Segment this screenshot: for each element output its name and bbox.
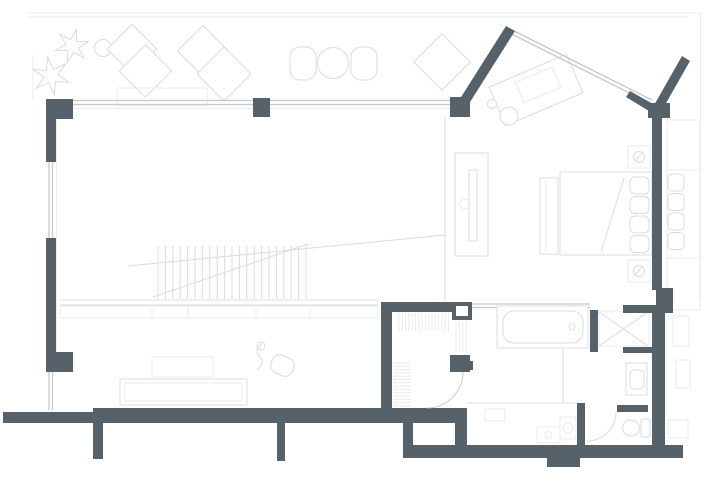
toilet-bowl (623, 420, 640, 436)
floor-drain (545, 432, 552, 439)
plant-star-1 (56, 30, 89, 63)
kitchen-counter (60, 306, 378, 318)
wall-a-vertical (577, 403, 585, 447)
wall-hall-top (617, 405, 648, 412)
wall-bath-divider (590, 310, 598, 352)
bath-door-swing (587, 412, 616, 441)
side-cushion-4 (668, 233, 684, 250)
toilet-tank (641, 419, 650, 437)
side-cushion-2 (668, 194, 684, 211)
wall-top-col-mid (253, 98, 270, 117)
wall-left-col-top (46, 99, 73, 119)
bed-pillow-2 (630, 197, 649, 214)
wall-stub-mid (277, 423, 285, 461)
wall-closet-left (381, 302, 392, 423)
wall-right-lower (652, 313, 665, 448)
desk-stool (500, 107, 518, 125)
wall-right-upper (652, 112, 662, 290)
stair-treads (158, 246, 306, 299)
bed-bench (540, 178, 558, 254)
wall-entry-step (547, 458, 580, 467)
wall-bottom-lower (403, 445, 683, 458)
patio-table (318, 48, 349, 79)
patio-chair-right (351, 47, 377, 80)
furniture (33, 24, 700, 443)
side-cushion-3 (668, 213, 684, 230)
terrace-mat (117, 88, 207, 106)
work-armchair (268, 352, 297, 379)
closet-door-swing (427, 372, 463, 408)
stair-stringer-diagonal (153, 244, 308, 297)
wall-shower-lip (623, 347, 652, 353)
wall-closet-column-notch (468, 361, 473, 370)
low-table (152, 357, 213, 377)
wall-left-col-bottom (46, 352, 73, 372)
desk-lamp (488, 100, 497, 109)
neighbor-fixture-2 (676, 360, 690, 388)
wall-bottom-left (3, 412, 105, 423)
wall-closet-column (450, 355, 470, 372)
floor-lines (56, 109, 590, 404)
bathtub-outer (497, 306, 588, 348)
wall-bed-bath (623, 305, 673, 313)
patio-chair-left (290, 47, 316, 80)
closet-shelf-hatch-top (399, 313, 449, 331)
side-cushion-1 (668, 174, 684, 191)
washing-machine (560, 417, 576, 439)
floor-plan-page (0, 0, 720, 480)
bed-pillow-4 (630, 236, 649, 253)
wall-stub-left (93, 423, 103, 459)
plant-star-2 (33, 57, 69, 94)
neighbor-fixture-3 (668, 420, 688, 438)
terrace-diamond-chair (414, 34, 471, 91)
loft-edge-diagonal (128, 235, 445, 266)
nightstand-bottom-lamp-slash (635, 266, 643, 275)
floor-drain-box (537, 427, 560, 443)
washing-machine-door (563, 423, 573, 433)
wall-openings (456, 306, 468, 316)
closet-shelf-hatch-left (393, 363, 411, 409)
apartment-floor-plan-drawing (0, 0, 720, 480)
entry-doormat (485, 409, 505, 421)
bed-pillow-1 (630, 177, 649, 194)
work-chair-knob (257, 342, 265, 350)
wall-left-lower (46, 238, 56, 352)
shaft-inner (456, 306, 468, 316)
shaft-side-hatch (456, 322, 466, 352)
bed-pillow-3 (630, 216, 649, 233)
neighbor-fixture-1 (673, 316, 689, 346)
wall-left-upper (46, 119, 56, 162)
wall-niche-right (455, 421, 467, 447)
wall-right-step (656, 288, 673, 305)
nightstand-top-lamp-slash (635, 152, 643, 161)
